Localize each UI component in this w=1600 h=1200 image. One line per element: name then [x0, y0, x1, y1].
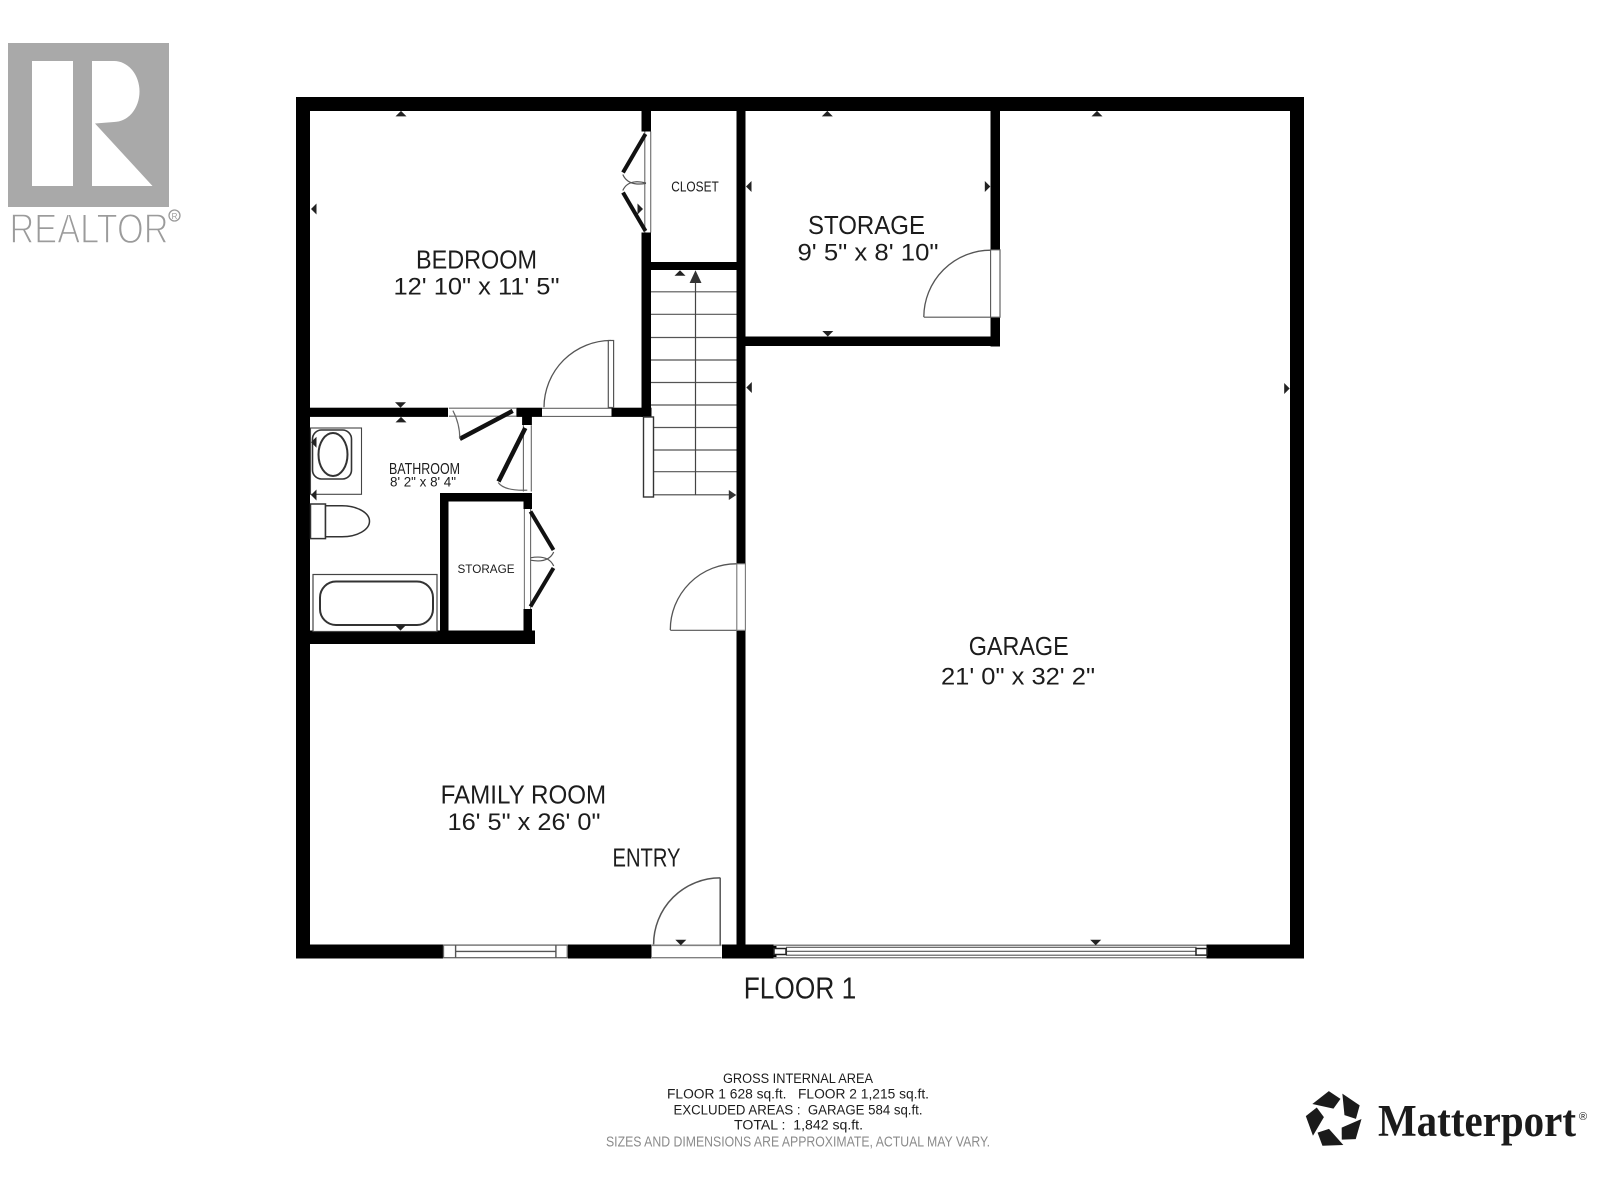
svg-text:12' 10" x 11' 5": 12' 10" x 11' 5" — [394, 274, 560, 301]
svg-text:TOTAL : 1,842 sq.ft.: TOTAL : 1,842 sq.ft. — [734, 1118, 863, 1133]
svg-text:®: ® — [1579, 1111, 1587, 1123]
svg-text:R: R — [172, 212, 178, 221]
svg-text:9' 5" x 8' 10": 9' 5" x 8' 10" — [798, 239, 939, 266]
svg-text:21' 0" x 32' 2": 21' 0" x 32' 2" — [941, 664, 1095, 691]
svg-text:FLOOR 1: FLOOR 1 — [744, 971, 857, 1005]
svg-text:STORAGE: STORAGE — [808, 210, 925, 240]
svg-text:FLOOR 1 628 sq.ft. FLOOR 2 1: FLOOR 1 628 sq.ft. FLOOR 2 1,215 sq.ft. — [667, 1087, 929, 1102]
svg-text:16' 5" x 26' 0": 16' 5" x 26' 0" — [448, 809, 601, 836]
svg-text:GARAGE: GARAGE — [969, 631, 1069, 661]
svg-text:Matterport: Matterport — [1378, 1096, 1576, 1146]
svg-text:STORAGE: STORAGE — [458, 562, 515, 576]
svg-text:ENTRY: ENTRY — [613, 842, 681, 872]
svg-text:EXCLUDED AREAS : GARAGE 584 s: EXCLUDED AREAS : GARAGE 584 sq.ft. — [674, 1102, 923, 1117]
svg-text:CLOSET: CLOSET — [671, 178, 719, 195]
svg-text:REALTOR: REALTOR — [10, 205, 169, 252]
svg-text:BEDROOM: BEDROOM — [416, 244, 537, 274]
svg-text:GROSS INTERNAL AREA: GROSS INTERNAL AREA — [723, 1071, 873, 1086]
svg-text:FAMILY ROOM: FAMILY ROOM — [441, 779, 607, 809]
svg-text:SIZES AND DIMENSIONS ARE APPRO: SIZES AND DIMENSIONS ARE APPROXIMATE, AC… — [606, 1134, 990, 1151]
svg-text:8' 2" x 8' 4": 8' 2" x 8' 4" — [390, 474, 456, 490]
